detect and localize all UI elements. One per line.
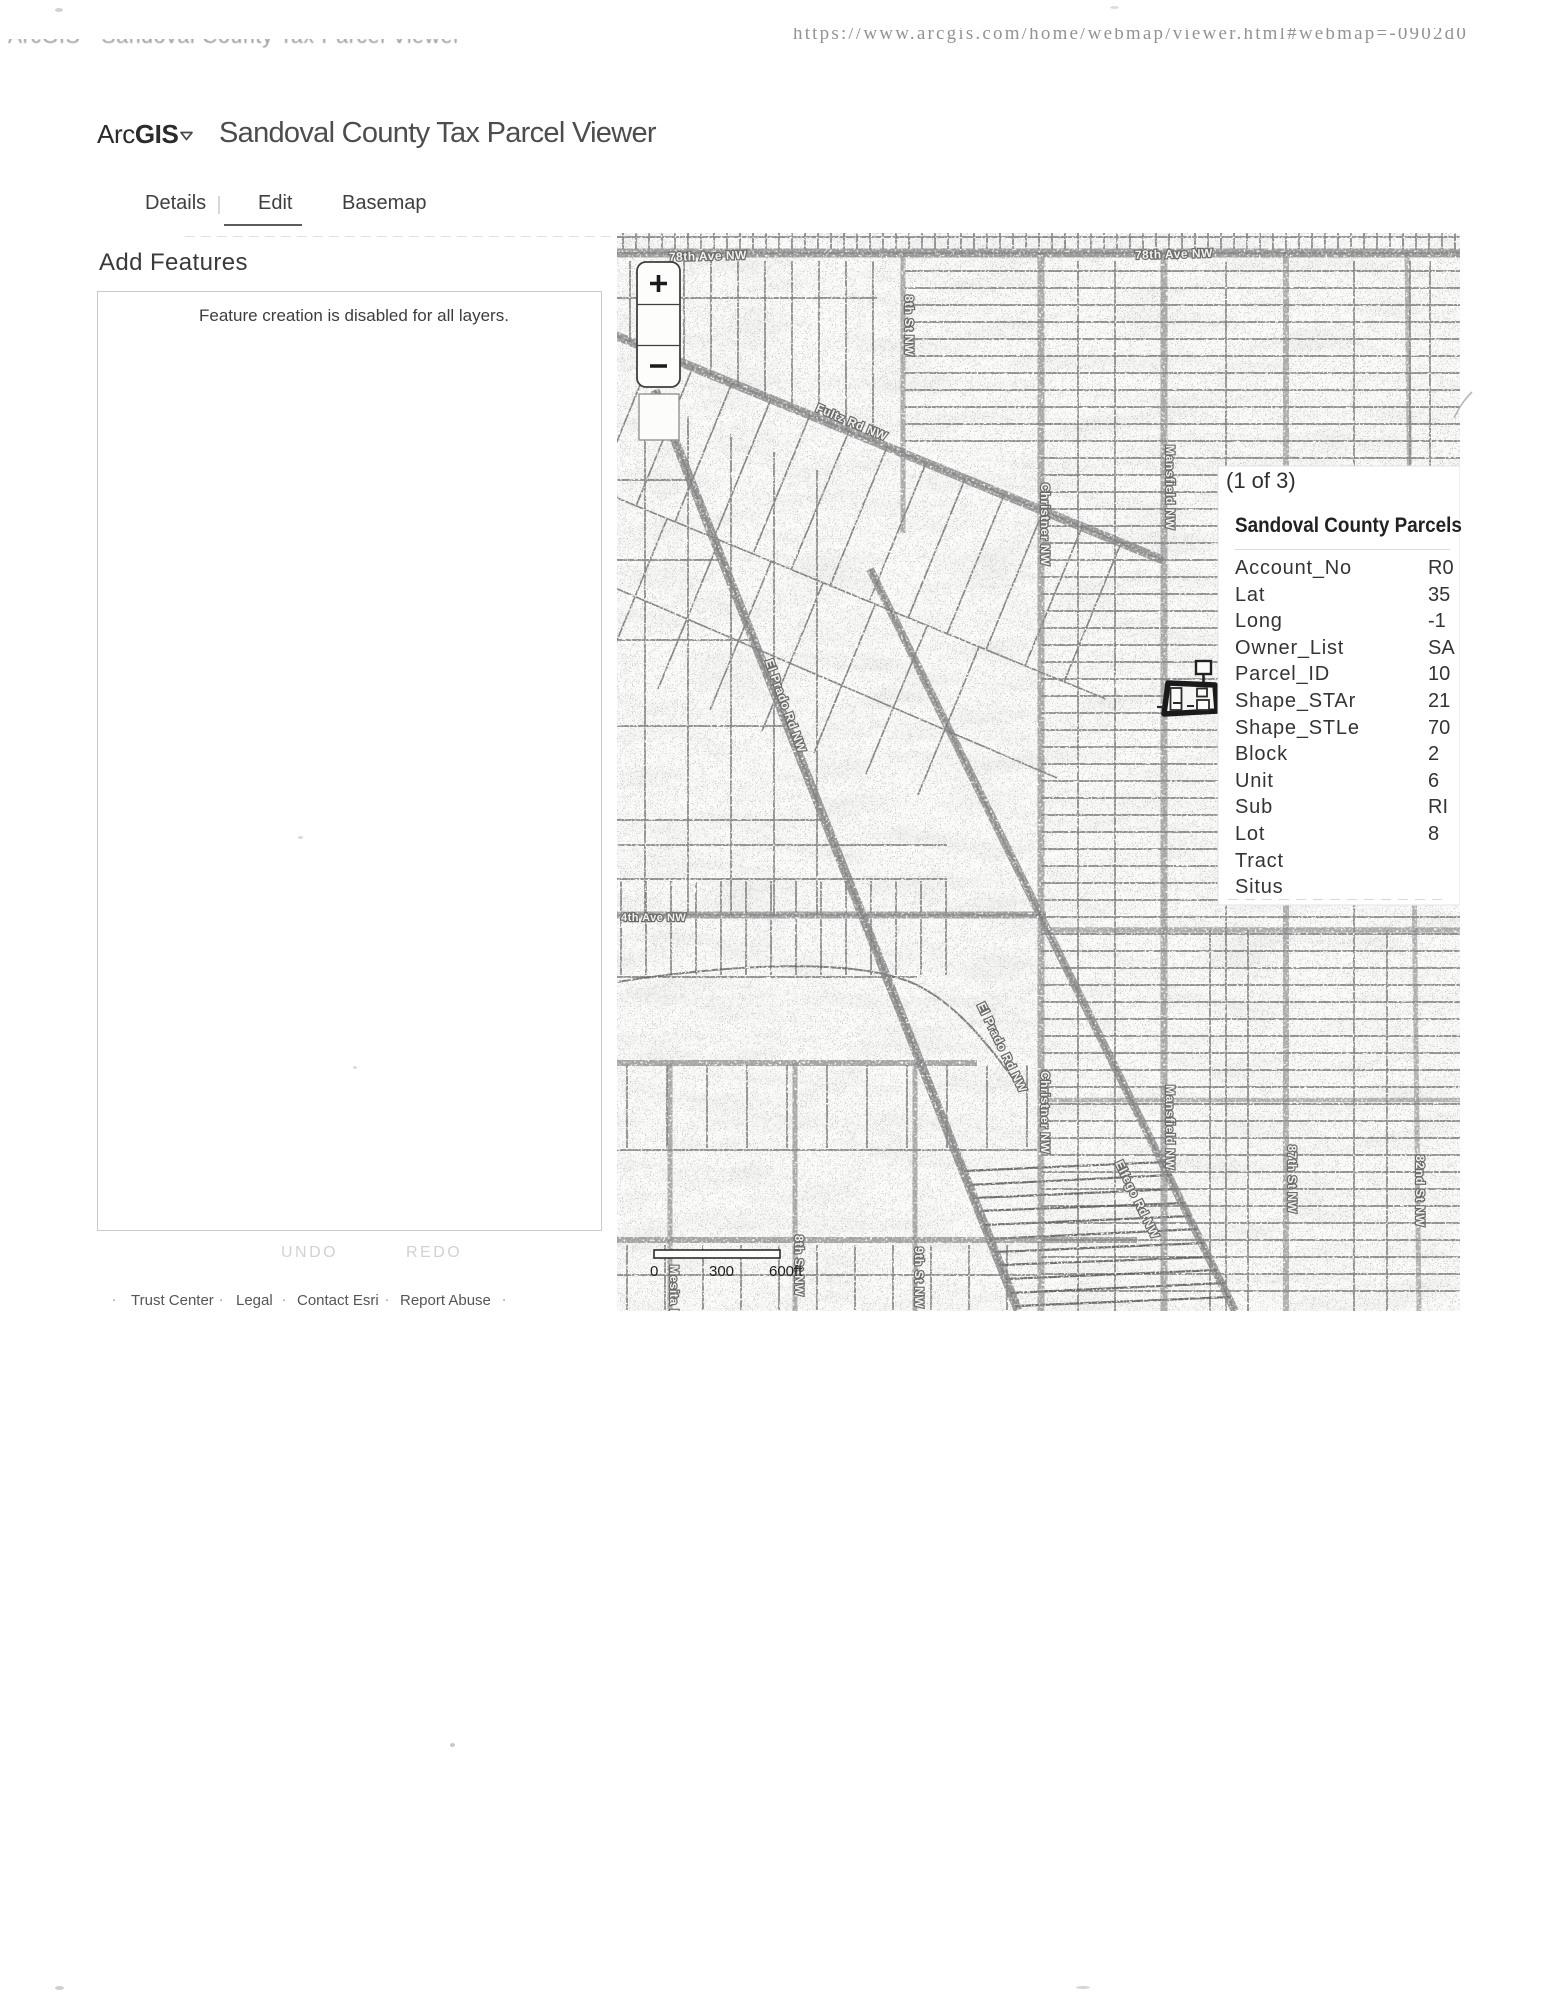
svg-text:78th Ave NW: 78th Ave NW (669, 248, 747, 264)
svg-text:4th Ave NW: 4th Ave NW (621, 912, 686, 924)
svg-text:9th St NW: 9th St NW (912, 1247, 926, 1308)
svg-text:300: 300 (709, 1263, 734, 1280)
svg-text:Mansfield NW: Mansfield NW (1163, 1085, 1177, 1170)
svg-text:Christner NW: Christner NW (1038, 483, 1052, 566)
svg-text:Christner NW: Christner NW (1038, 1071, 1052, 1154)
svg-text:82nd St NW: 82nd St NW (1413, 1155, 1427, 1227)
svg-text:78th Ave NW: 78th Ave NW (1135, 246, 1213, 262)
svg-text:0: 0 (650, 1263, 658, 1280)
svg-text:Mesita NW: Mesita NW (667, 1265, 681, 1311)
svg-text:Mansfield NW: Mansfield NW (1163, 445, 1177, 530)
svg-text:87th St NW: 87th St NW (1285, 1145, 1299, 1214)
svg-text:8th St NW: 8th St NW (902, 295, 916, 356)
svg-text:600ft: 600ft (769, 1263, 803, 1280)
